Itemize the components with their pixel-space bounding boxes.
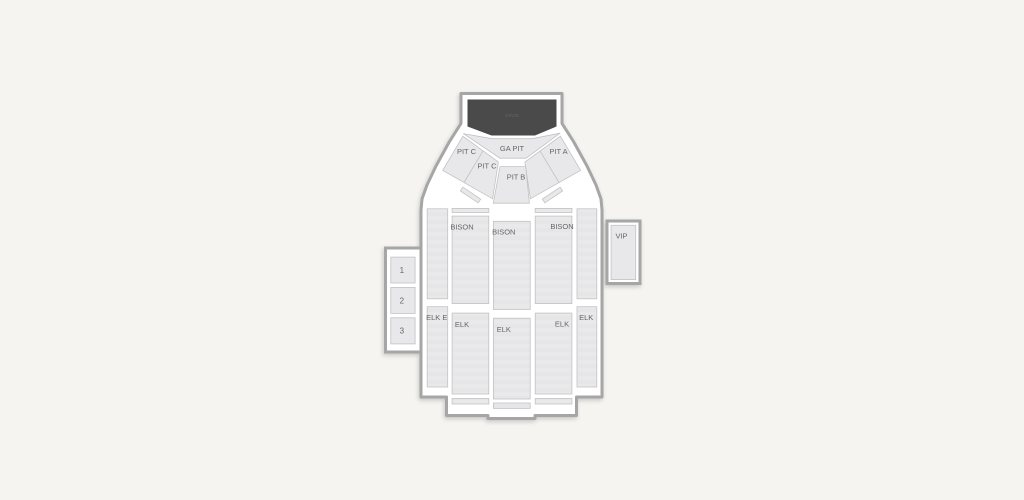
svg-text:1: 1 bbox=[400, 266, 405, 275]
svg-text:ELK: ELK bbox=[579, 313, 593, 322]
svg-text:ELK: ELK bbox=[497, 325, 511, 334]
svg-text:BISON: BISON bbox=[550, 222, 573, 231]
svg-text:PIT C: PIT C bbox=[457, 147, 477, 156]
svg-text:BISON: BISON bbox=[492, 228, 515, 237]
svg-text:ELK E: ELK E bbox=[426, 313, 447, 322]
svg-text:PIT A: PIT A bbox=[549, 147, 567, 156]
svg-text:PIT B: PIT B bbox=[507, 172, 526, 181]
svg-text:VIP: VIP bbox=[615, 231, 627, 240]
svg-text:ELK: ELK bbox=[555, 319, 569, 328]
svg-text:PIT C: PIT C bbox=[477, 161, 497, 170]
svg-text:BISON: BISON bbox=[450, 223, 473, 232]
svg-text:ELK: ELK bbox=[455, 320, 469, 329]
svg-text:STAGE: STAGE bbox=[505, 113, 519, 118]
svg-text:GA PIT: GA PIT bbox=[500, 144, 525, 153]
svg-text:2: 2 bbox=[400, 296, 405, 305]
svg-text:3: 3 bbox=[400, 327, 405, 336]
